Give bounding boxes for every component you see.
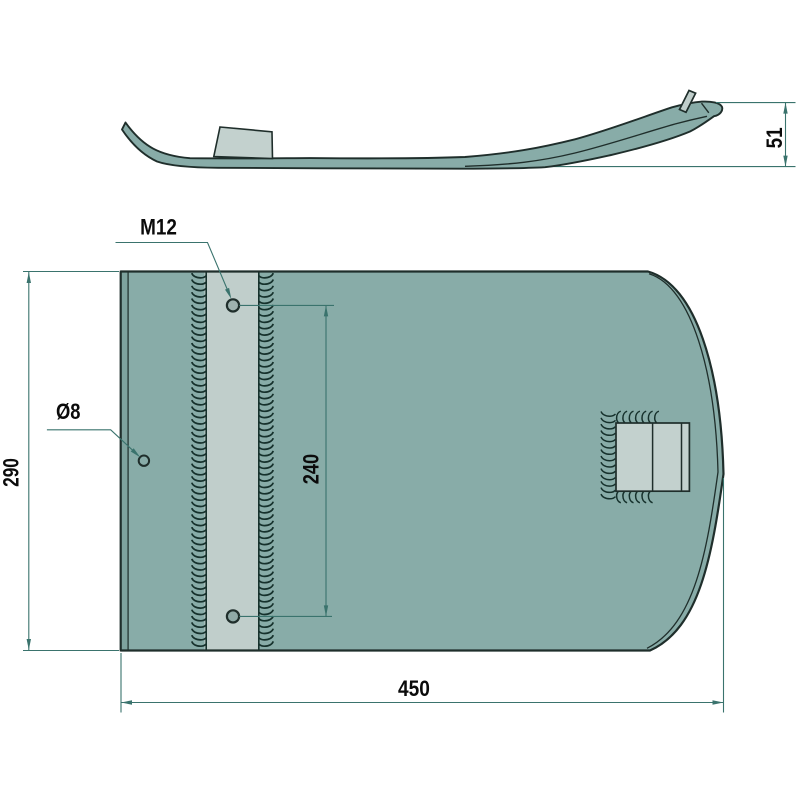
svg-text:290: 290 bbox=[0, 458, 23, 487]
svg-text:450: 450 bbox=[398, 676, 430, 701]
svg-text:51: 51 bbox=[762, 127, 787, 148]
svg-text:Ø8: Ø8 bbox=[56, 399, 81, 424]
svg-text:M12: M12 bbox=[140, 214, 177, 239]
svg-text:240: 240 bbox=[299, 454, 324, 484]
